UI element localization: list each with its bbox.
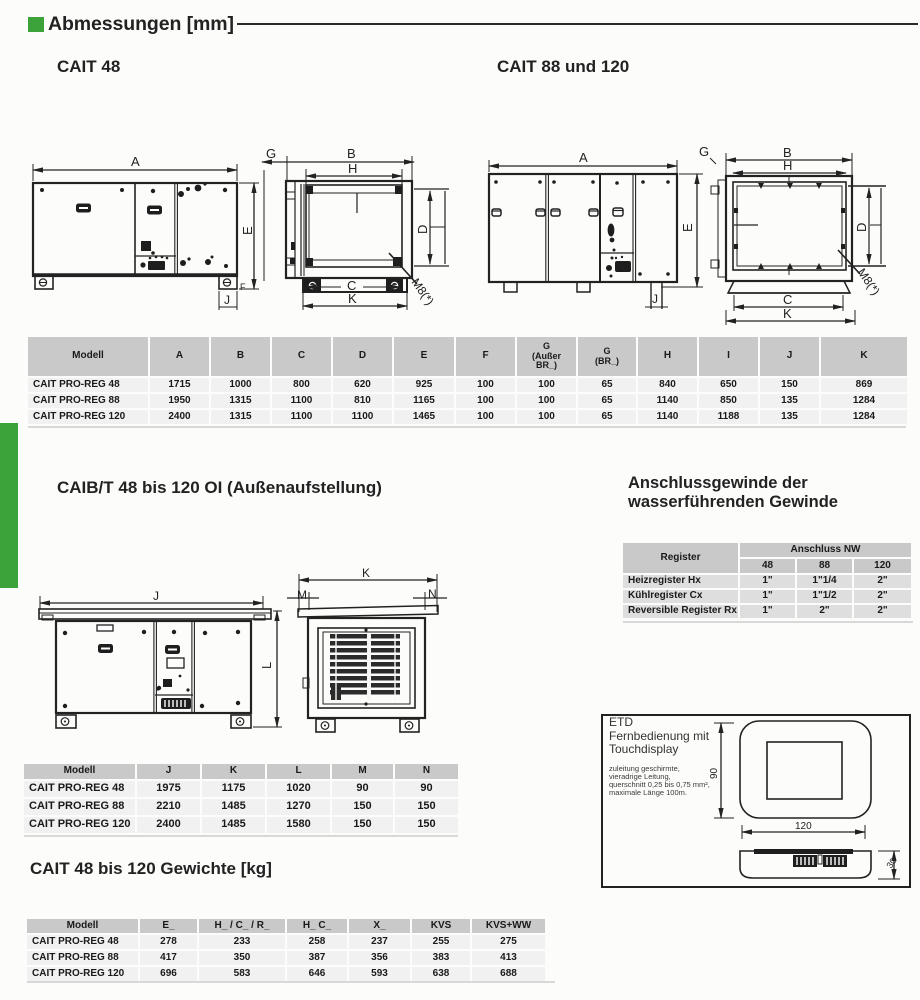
svg-text:K: K [783,306,792,321]
svg-text:M8(*): M8(*) [409,276,437,308]
svg-text:N: N [428,587,437,601]
svg-text:G: G [699,144,709,159]
svg-text:M8(*): M8(*) [855,266,883,298]
svg-text:A: A [131,154,140,169]
svg-text:A: A [579,150,588,165]
svg-text:J: J [224,293,230,307]
svg-text:E: E [240,226,255,235]
svg-text:H: H [783,158,792,173]
svg-text:90: 90 [709,767,720,779]
svg-text:M: M [297,588,307,602]
svg-text:B: B [347,146,356,161]
svg-text:30: 30 [884,856,898,870]
svg-text:D: D [415,225,430,234]
svg-text:120: 120 [795,821,812,832]
svg-text:D: D [854,223,869,232]
svg-text:K: K [362,566,370,580]
svg-text:E: E [680,223,695,232]
svg-text:K: K [348,291,357,306]
svg-text:F: F [240,282,246,292]
svg-text:J: J [153,589,159,603]
svg-text:L: L [259,662,274,669]
svg-text:C: C [783,292,792,307]
svg-text:J: J [652,292,658,306]
svg-text:G: G [266,146,276,161]
svg-text:H: H [348,161,357,176]
